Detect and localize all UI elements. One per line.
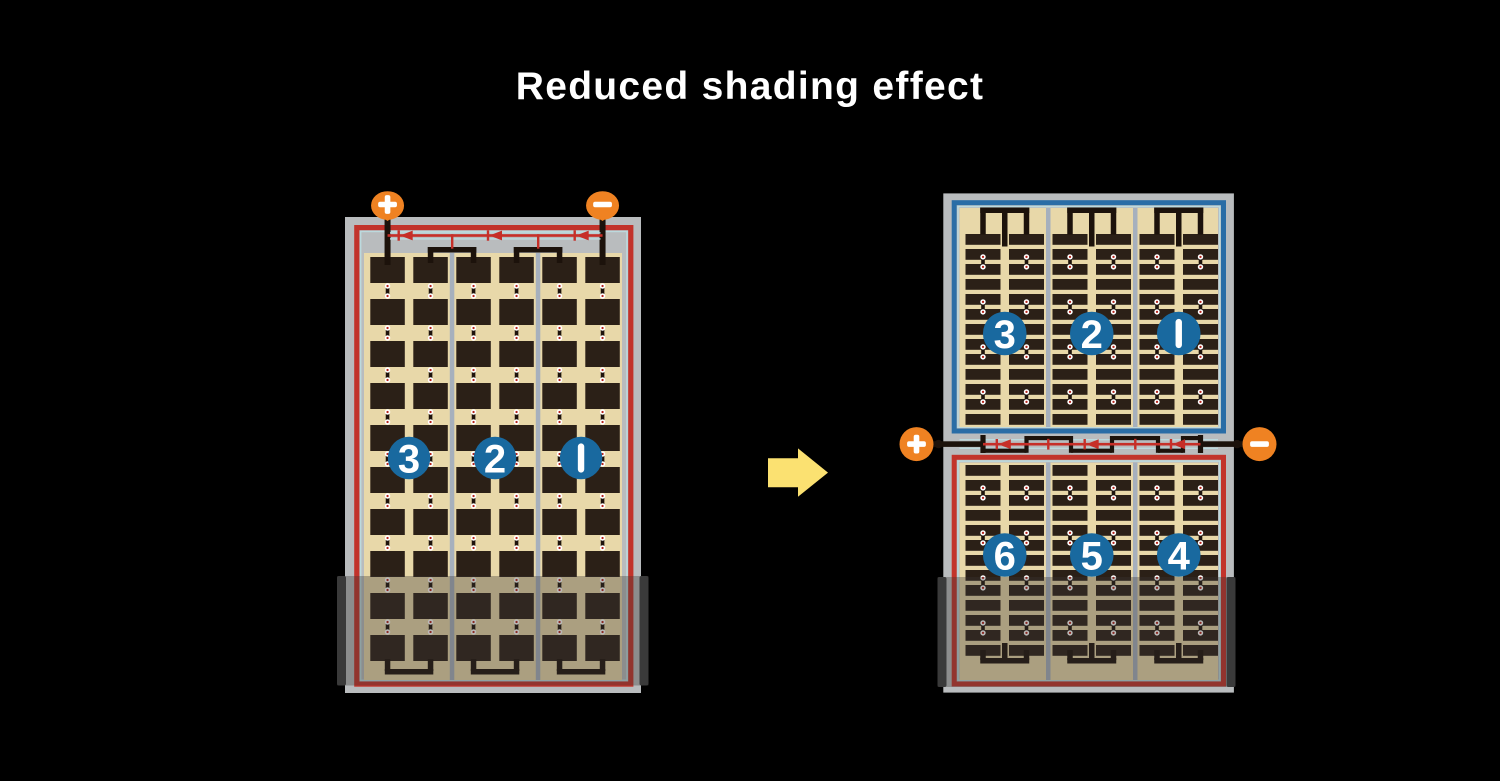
svg-text:3: 3	[398, 437, 420, 481]
svg-text:2: 2	[484, 437, 506, 481]
svg-text:2: 2	[1081, 313, 1103, 357]
svg-text:4: 4	[1168, 534, 1191, 578]
svg-text:5: 5	[1081, 534, 1103, 578]
svg-text:6: 6	[994, 534, 1016, 578]
svg-text:3: 3	[994, 313, 1016, 357]
